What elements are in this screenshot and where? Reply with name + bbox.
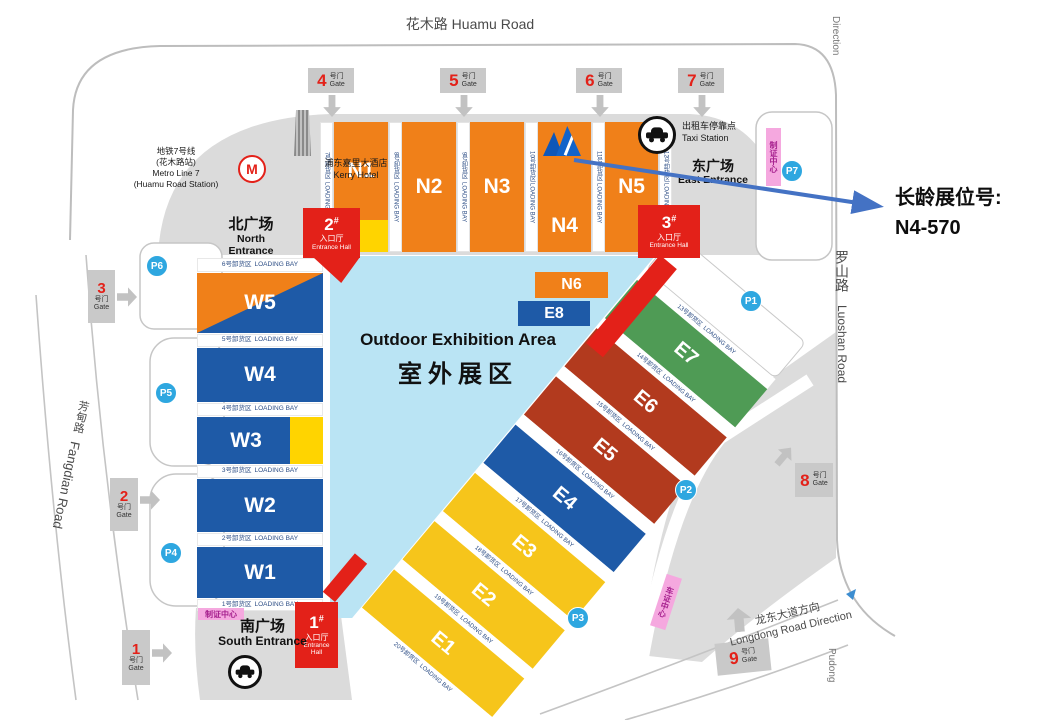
- metro-info: 地铁7号线 (花木路站) Metro Line 7 (Huamu Road St…: [120, 146, 232, 190]
- taxi-station-label: 出租车停靠点 Taxi Station: [682, 120, 777, 144]
- parking-p1: P1: [740, 290, 762, 312]
- parking-p3: P3: [567, 607, 589, 629]
- gate-8: 8 号门Gate: [795, 463, 833, 497]
- hall-n6: N6: [535, 272, 608, 298]
- gate-3: 3 号门Gate: [88, 270, 115, 323]
- entrance-hall-2: 2# 入口厅 Entrance Hall: [303, 208, 360, 258]
- hall-w4-label: W4: [244, 363, 276, 387]
- entrance-hall-3: 3# 入口厅 Entrance Hall: [638, 205, 700, 258]
- expo-map-canvas: Outdoor Exhibition Area 室外展区 7号卸货区LOADIN…: [0, 0, 1054, 720]
- luoshan-road-label: 罗山路 Luoshan Road: [832, 250, 852, 445]
- metro-logo-icon: M: [238, 155, 266, 183]
- loading-bay-4: 4号卸货区LOADING BAY: [197, 403, 323, 416]
- booth-annotation: 长龄展位号: N4-570: [895, 183, 1053, 243]
- booth-annotation-line1: 长龄展位号:: [895, 183, 1053, 213]
- gate-5: 5 号门Gate: [440, 68, 486, 93]
- parking-p2: P2: [675, 479, 697, 501]
- south-taxi-icon: [228, 655, 262, 689]
- pudong-road-label: Pudong: [826, 648, 837, 718]
- hall-w4: W4: [197, 348, 323, 402]
- gate-2: 2 号门Gate: [110, 478, 138, 531]
- hall-n3-label: N3: [484, 175, 511, 199]
- parking-p6: P6: [146, 255, 168, 277]
- hall-n3: N3: [470, 122, 524, 252]
- north-entrance-label: 北广场 North Entrance: [212, 216, 290, 257]
- hall-w3-yellow-zone: [290, 417, 323, 464]
- hall-n2: N2: [402, 122, 456, 252]
- hall-w5: W5: [197, 273, 323, 333]
- gate-7: 7 号门Gate: [678, 68, 724, 93]
- loading-bay-9: 9号卸货区LOADING BAY: [457, 122, 470, 252]
- gate-6: 6 号门Gate: [576, 68, 622, 93]
- east-entrance-label: 东广场 East Entrance: [668, 158, 758, 186]
- hall-w5-label: W5: [244, 291, 276, 315]
- outdoor-label-en: Outdoor Exhibition Area: [336, 330, 580, 350]
- huamu-road-label: 花木路 Huamu Road: [360, 14, 580, 34]
- hall-w2: W2: [197, 479, 323, 532]
- gate-4: 4 号门Gate: [308, 68, 354, 93]
- parking-p4: P4: [160, 542, 182, 564]
- south-entrance-label: 南广场 South Entrance: [200, 618, 325, 649]
- hall-n5-label: N5: [618, 175, 645, 199]
- loading-bay-8: 8号卸货区LOADING BAY: [389, 122, 402, 252]
- hall-e8: E8: [518, 301, 590, 326]
- taxi-station-icon: [638, 116, 676, 154]
- hall-w1-label: W1: [244, 561, 276, 585]
- hall-w3: W3: [197, 417, 323, 464]
- loading-bay-6: 6号卸货区LOADING BAY: [197, 258, 323, 272]
- gate-1: 1 号门Gate: [122, 630, 150, 685]
- loading-bay-5: 5号卸货区LOADING BAY: [197, 334, 323, 347]
- loading-bay-10: 10号卸货区LOADING BAY: [525, 122, 538, 252]
- hall-n2-label: N2: [416, 175, 443, 199]
- booth-annotation-line2: N4-570: [895, 213, 1053, 243]
- hall-n4-label: N4: [551, 214, 578, 238]
- loading-bay-3: 3号卸货区LOADING BAY: [197, 465, 323, 478]
- hall-w1: W1: [197, 547, 323, 598]
- loading-bay-11: 11号卸货区LOADING BAY: [592, 122, 605, 252]
- hall-w3-label: W3: [230, 429, 262, 453]
- outdoor-label-cn: 室外展区: [336, 354, 580, 389]
- changlin-logo: [543, 126, 581, 160]
- parking-p5: P5: [155, 382, 177, 404]
- parking-p7: P7: [781, 160, 803, 182]
- outdoor-area-label: Outdoor Exhibition Area 室外展区: [336, 330, 580, 389]
- loading-bay-2: 2号卸货区LOADING BAY: [197, 533, 323, 546]
- kerry-hotel-icon: [294, 110, 311, 156]
- direction-label-top: Direction: [830, 16, 841, 88]
- kerry-hotel-label: 浦东嘉里大酒店 Kerry Hotel: [312, 158, 400, 181]
- hall-w2-label: W2: [244, 494, 276, 518]
